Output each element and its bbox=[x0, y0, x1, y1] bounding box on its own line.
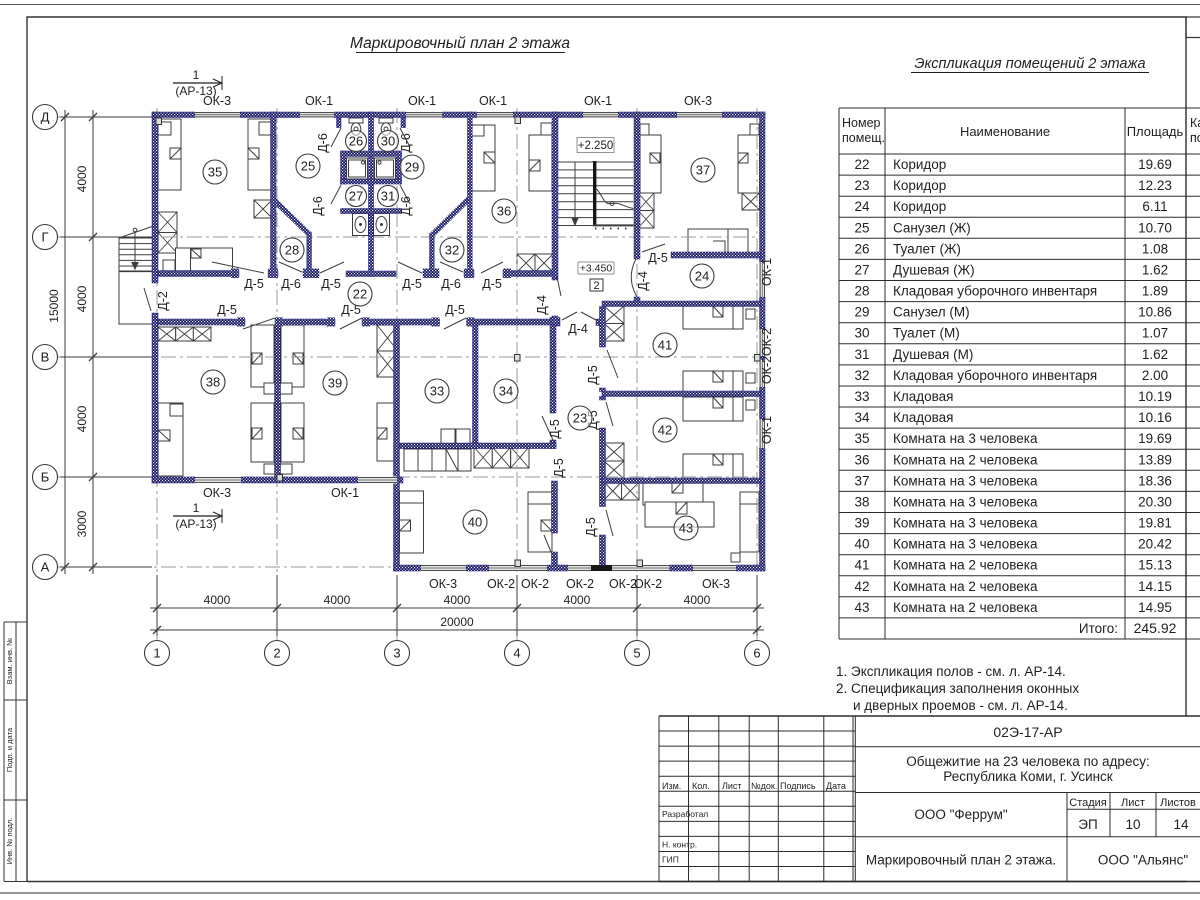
svg-text:1.62: 1.62 bbox=[1142, 347, 1168, 362]
svg-text:39: 39 bbox=[328, 376, 342, 391]
svg-text:Н. контр.: Н. контр. bbox=[662, 840, 697, 850]
svg-text:Комната на 3 человека: Комната на 3 человека bbox=[893, 516, 1038, 531]
svg-text:42: 42 bbox=[854, 579, 869, 594]
svg-text:35: 35 bbox=[854, 431, 869, 446]
svg-text:24: 24 bbox=[695, 269, 709, 284]
svg-text:Кладовая: Кладовая bbox=[893, 410, 953, 425]
svg-text:2: 2 bbox=[593, 280, 599, 292]
svg-text:30: 30 bbox=[381, 134, 395, 149]
svg-text:Дата: Дата bbox=[826, 781, 846, 791]
svg-text:Д-5: Д-5 bbox=[548, 419, 562, 439]
svg-text:1. Экспликация полов - см. л.: 1. Экспликация полов - см. л. АР-14. bbox=[836, 664, 1066, 679]
svg-text:38: 38 bbox=[854, 494, 869, 509]
svg-text:23: 23 bbox=[854, 178, 869, 193]
svg-text:33: 33 bbox=[430, 384, 444, 399]
svg-text:12.23: 12.23 bbox=[1138, 178, 1172, 193]
svg-text:Д-5: Д-5 bbox=[244, 277, 264, 291]
svg-text:23: 23 bbox=[573, 411, 587, 426]
svg-text:26: 26 bbox=[349, 134, 363, 149]
svg-text:1.08: 1.08 bbox=[1142, 241, 1168, 256]
svg-text:ОК-2: ОК-2 bbox=[634, 577, 662, 591]
svg-text:ОК-2: ОК-2 bbox=[760, 356, 774, 384]
svg-text:43: 43 bbox=[679, 521, 693, 536]
svg-text:4000: 4000 bbox=[444, 593, 471, 607]
svg-text:41: 41 bbox=[658, 338, 672, 353]
svg-text:ОК-3: ОК-3 bbox=[702, 577, 730, 591]
svg-text:Д-6: Д-6 bbox=[399, 133, 413, 153]
svg-text:(АР-13): (АР-13) bbox=[175, 517, 216, 531]
svg-text:ОК-1: ОК-1 bbox=[305, 94, 333, 108]
svg-text:ГИП: ГИП bbox=[662, 855, 679, 865]
svg-text:Д-5: Д-5 bbox=[552, 458, 566, 478]
svg-text:ОК-2: ОК-2 bbox=[487, 577, 515, 591]
svg-text:Д-5: Д-5 bbox=[402, 277, 422, 291]
svg-text:19.69: 19.69 bbox=[1138, 431, 1172, 446]
svg-text:ОК-2: ОК-2 bbox=[760, 328, 774, 356]
svg-text:Кладовая уборочного инвентаря: Кладовая уборочного инвентаря bbox=[893, 284, 1097, 299]
svg-text:Коридор: Коридор bbox=[893, 199, 946, 214]
svg-text:Комната на 3 человека: Комната на 3 человека bbox=[893, 431, 1038, 446]
svg-text:4000: 4000 bbox=[324, 593, 351, 607]
svg-text:ОК-1: ОК-1 bbox=[331, 486, 359, 500]
svg-text:37: 37 bbox=[696, 163, 710, 178]
svg-text:ОК-1: ОК-1 bbox=[584, 94, 612, 108]
svg-text:4000: 4000 bbox=[75, 285, 89, 312]
svg-text:Взам. инв. №: Взам. инв. № bbox=[5, 638, 14, 684]
svg-text:Номер: Номер bbox=[842, 116, 881, 130]
svg-text:Республика Коми, г. Усинск: Республика Коми, г. Усинск bbox=[943, 769, 1113, 784]
svg-text:4000: 4000 bbox=[75, 405, 89, 432]
svg-text:35: 35 bbox=[208, 165, 222, 180]
svg-text:ОК-2: ОК-2 bbox=[566, 577, 594, 591]
svg-text:Наименование: Наименование bbox=[960, 124, 1050, 139]
svg-text:Изм.: Изм. bbox=[662, 781, 681, 791]
svg-text:36: 36 bbox=[497, 204, 511, 219]
svg-text:27: 27 bbox=[854, 262, 869, 277]
svg-text:19.69: 19.69 bbox=[1138, 157, 1172, 172]
svg-text:3: 3 bbox=[393, 646, 400, 661]
svg-text:помещ.: помещ. bbox=[842, 131, 885, 145]
svg-text:19.81: 19.81 bbox=[1138, 516, 1172, 531]
svg-text:4000: 4000 bbox=[564, 593, 591, 607]
svg-text:Маркировочный план 2 этажа: Маркировочный план 2 этажа bbox=[350, 35, 570, 52]
svg-text:31: 31 bbox=[854, 347, 869, 362]
svg-text:1.62: 1.62 bbox=[1142, 262, 1168, 277]
svg-text:14.15: 14.15 bbox=[1138, 579, 1172, 594]
svg-text:39: 39 bbox=[854, 516, 869, 531]
svg-text:02Э-17-АР: 02Э-17-АР bbox=[993, 724, 1062, 740]
svg-text:Д-5: Д-5 bbox=[586, 365, 600, 385]
svg-text:Санузел (Ж): Санузел (Ж) bbox=[893, 220, 971, 235]
svg-text:Комната на 2 человека: Комната на 2 человека bbox=[893, 558, 1038, 573]
svg-text:+2.250: +2.250 bbox=[578, 140, 614, 152]
svg-text:ОК-1: ОК-1 bbox=[760, 416, 774, 444]
svg-text:28: 28 bbox=[285, 243, 299, 258]
svg-text:Санузел (М): Санузел (М) bbox=[893, 305, 970, 320]
svg-text:1: 1 bbox=[193, 501, 200, 515]
svg-text:Д: Д bbox=[41, 110, 50, 125]
svg-text:29: 29 bbox=[405, 160, 419, 175]
svg-text:Комната на 3 человека: Комната на 3 человека bbox=[893, 537, 1038, 552]
svg-text:37: 37 bbox=[854, 473, 869, 488]
svg-text:43: 43 bbox=[854, 600, 869, 615]
svg-text:3000: 3000 bbox=[75, 510, 89, 537]
svg-text:2.00: 2.00 bbox=[1142, 368, 1168, 383]
svg-text:+3.450: +3.450 bbox=[580, 263, 613, 275]
svg-text:Д-6: Д-6 bbox=[441, 277, 461, 291]
svg-text:Лист: Лист bbox=[722, 781, 742, 791]
svg-text:1.89: 1.89 bbox=[1142, 284, 1168, 299]
svg-text:Д-6: Д-6 bbox=[311, 196, 325, 216]
svg-text:10.19: 10.19 bbox=[1138, 389, 1172, 404]
svg-text:Д-4: Д-4 bbox=[636, 271, 650, 291]
svg-text:10: 10 bbox=[1125, 817, 1140, 832]
svg-text:Г: Г bbox=[41, 230, 48, 245]
svg-text:Коридор: Коридор bbox=[893, 157, 946, 172]
svg-text:32: 32 bbox=[445, 243, 459, 258]
svg-text:Д-4: Д-4 bbox=[568, 322, 588, 336]
svg-text:Кладовая уборочного инвентаря: Кладовая уборочного инвентаря bbox=[893, 368, 1097, 383]
svg-text:Экспликация помещений 2 этажа: Экспликация помещений 2 этажа bbox=[914, 56, 1145, 72]
svg-text:Стадия: Стадия bbox=[1069, 797, 1107, 809]
svg-text:Площадь: Площадь bbox=[1127, 124, 1184, 139]
svg-text:Комната на 2 человека: Комната на 2 человека bbox=[893, 452, 1038, 467]
svg-text:4000: 4000 bbox=[204, 593, 231, 607]
svg-text:Коридор: Коридор bbox=[893, 178, 946, 193]
svg-text:15.13: 15.13 bbox=[1138, 558, 1172, 573]
svg-text:Д-5: Д-5 bbox=[648, 251, 668, 265]
svg-text:34: 34 bbox=[854, 410, 870, 425]
svg-text:Инв. № подл.: Инв. № подл. bbox=[5, 818, 14, 865]
svg-text:Комната на 2 человека: Комната на 2 человека bbox=[893, 600, 1038, 615]
svg-text:10.70: 10.70 bbox=[1138, 220, 1172, 235]
svg-text:6.11: 6.11 bbox=[1142, 199, 1167, 214]
svg-text:32: 32 bbox=[854, 368, 869, 383]
svg-text:ОК-1: ОК-1 bbox=[760, 258, 774, 286]
svg-text:26: 26 bbox=[854, 241, 869, 256]
svg-text:Маркировочный план 2 этажа.: Маркировочный план 2 этажа. bbox=[866, 853, 1056, 868]
svg-text:Д-6: Д-6 bbox=[316, 133, 330, 153]
svg-text:Кол.: Кол. bbox=[692, 781, 710, 791]
svg-text:1: 1 bbox=[193, 68, 200, 82]
svg-text:2. Спецификация заполнения око: 2. Спецификация заполнения оконных bbox=[836, 681, 1079, 696]
svg-text:27: 27 bbox=[349, 189, 363, 204]
svg-text:Д-4: Д-4 bbox=[535, 295, 549, 315]
svg-text:38: 38 bbox=[206, 375, 220, 390]
svg-text:Б: Б bbox=[41, 470, 50, 485]
svg-text:22: 22 bbox=[854, 157, 869, 172]
svg-text:22: 22 bbox=[353, 287, 367, 302]
svg-text:18.36: 18.36 bbox=[1138, 473, 1172, 488]
svg-text:Д-5: Д-5 bbox=[217, 303, 237, 317]
svg-text:41: 41 bbox=[854, 558, 869, 573]
svg-text:пож: пож bbox=[1190, 131, 1200, 145]
svg-text:Д-6: Д-6 bbox=[281, 277, 301, 291]
svg-text:Д-6: Д-6 bbox=[399, 196, 413, 216]
svg-text:28: 28 bbox=[854, 284, 869, 299]
svg-text:ООО "Альянс": ООО "Альянс" bbox=[1098, 853, 1188, 868]
svg-text:ООО "Феррум": ООО "Феррум" bbox=[914, 807, 1008, 822]
svg-text:33: 33 bbox=[854, 389, 869, 404]
svg-text:29: 29 bbox=[854, 305, 869, 320]
svg-text:ОК-1: ОК-1 bbox=[479, 94, 507, 108]
svg-text:№док.: №док. bbox=[751, 781, 777, 791]
svg-text:Д-5: Д-5 bbox=[321, 277, 341, 291]
svg-text:Комната на 2 человека: Комната на 2 человека bbox=[893, 579, 1038, 594]
svg-text:Листов: Листов bbox=[1160, 797, 1196, 809]
svg-text:и дверных проемов - см. л. АР-: и дверных проемов - см. л. АР-14. bbox=[853, 698, 1068, 713]
svg-text:15000: 15000 bbox=[47, 289, 61, 323]
svg-text:ОК-3: ОК-3 bbox=[203, 486, 231, 500]
svg-text:1: 1 bbox=[153, 646, 160, 661]
svg-text:1.07: 1.07 bbox=[1142, 326, 1168, 341]
svg-text:ОК-2: ОК-2 bbox=[521, 577, 549, 591]
svg-text:ОК-2: ОК-2 bbox=[609, 577, 637, 591]
svg-text:Туалет (М): Туалет (М) bbox=[893, 326, 960, 341]
svg-text:(АР-13): (АР-13) bbox=[175, 84, 216, 98]
svg-text:Комната на 3 человека: Комната на 3 человека bbox=[893, 494, 1038, 509]
svg-text:В: В bbox=[41, 350, 50, 365]
svg-text:Д-5: Д-5 bbox=[482, 277, 502, 291]
svg-text:Кат: Кат bbox=[1190, 116, 1200, 130]
svg-text:Итого:: Итого: bbox=[1079, 621, 1118, 636]
svg-text:36: 36 bbox=[854, 452, 869, 467]
svg-text:ОК-1: ОК-1 bbox=[408, 94, 436, 108]
svg-text:Душевая (М): Душевая (М) bbox=[893, 347, 973, 362]
svg-text:Общежитие на 23 человека по ад: Общежитие на 23 человека по адресу: bbox=[906, 754, 1149, 769]
svg-text:25: 25 bbox=[854, 220, 869, 235]
svg-text:34: 34 bbox=[499, 384, 513, 399]
svg-text:Лист: Лист bbox=[1121, 797, 1145, 809]
svg-text:20.42: 20.42 bbox=[1138, 537, 1172, 552]
svg-text:А: А bbox=[41, 560, 50, 575]
svg-text:20.30: 20.30 bbox=[1138, 494, 1172, 509]
svg-text:Комната на 3 человека: Комната на 3 человека bbox=[893, 473, 1038, 488]
svg-text:10.86: 10.86 bbox=[1138, 305, 1172, 320]
svg-text:Д-5: Д-5 bbox=[584, 517, 598, 537]
svg-text:Подп. и дата: Подп. и дата bbox=[5, 727, 14, 772]
svg-text:14.95: 14.95 bbox=[1138, 600, 1172, 615]
svg-text:Разработал: Разработал bbox=[662, 809, 708, 819]
svg-text:4000: 4000 bbox=[684, 593, 711, 607]
svg-text:ЭП: ЭП bbox=[1078, 817, 1097, 832]
svg-text:4000: 4000 bbox=[75, 165, 89, 192]
svg-text:30: 30 bbox=[854, 326, 869, 341]
svg-text:25: 25 bbox=[301, 159, 315, 174]
svg-text:5: 5 bbox=[633, 646, 640, 661]
svg-text:Душевая (Ж): Душевая (Ж) bbox=[893, 262, 975, 277]
svg-text:Подпись: Подпись bbox=[780, 781, 816, 791]
svg-text:42: 42 bbox=[658, 423, 672, 438]
svg-text:2: 2 bbox=[273, 646, 280, 661]
svg-text:40: 40 bbox=[854, 537, 869, 552]
svg-text:Д-2: Д-2 bbox=[156, 291, 170, 311]
svg-text:31: 31 bbox=[381, 189, 395, 204]
svg-text:ОК-3: ОК-3 bbox=[429, 577, 457, 591]
svg-text:Туалет (Ж): Туалет (Ж) bbox=[893, 241, 961, 256]
svg-text:24: 24 bbox=[854, 199, 870, 214]
svg-text:Кладовая: Кладовая bbox=[893, 389, 953, 404]
svg-text:13.89: 13.89 bbox=[1138, 452, 1172, 467]
svg-text:14: 14 bbox=[1173, 817, 1189, 832]
svg-text:ОК-3: ОК-3 bbox=[684, 94, 712, 108]
svg-text:40: 40 bbox=[468, 515, 482, 530]
svg-text:20000: 20000 bbox=[440, 615, 474, 629]
svg-text:10.16: 10.16 bbox=[1138, 410, 1172, 425]
svg-text:Д-5: Д-5 bbox=[445, 303, 465, 317]
svg-text:245.92: 245.92 bbox=[1134, 620, 1177, 636]
svg-text:6: 6 bbox=[753, 646, 760, 661]
svg-text:4: 4 bbox=[513, 646, 520, 661]
